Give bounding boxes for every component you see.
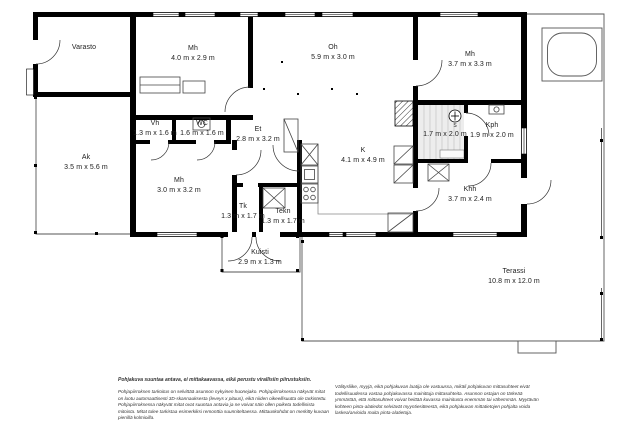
room-label-sauna: 1.7 m x 2.0 m bbox=[423, 130, 467, 140]
sauna-stove-label: S bbox=[453, 123, 456, 129]
room-label-terassi: Terassi10.8 m x 12.0 m bbox=[488, 267, 540, 287]
bathroom-sink bbox=[489, 105, 504, 114]
disclaimer-heading: Pohjakuva suuntaa antava, ei mittakaavas… bbox=[118, 377, 348, 384]
room-label-mh-ne: Mh3.7 m x 3.3 m bbox=[448, 50, 492, 70]
room-dims: 2.8 m x 3.2 m bbox=[236, 135, 280, 145]
room-dims: 10.8 m x 12.0 m bbox=[488, 277, 540, 287]
room-name: Varasto bbox=[72, 43, 96, 53]
room-name: Terassi bbox=[488, 267, 540, 277]
room-dims: 1.9 m x 2.0 m bbox=[470, 131, 514, 141]
disclaimer-right-paragraph: Välitysliike, myyjä, eikä pohjakuvan laa… bbox=[335, 384, 540, 417]
room-name: Kuisti bbox=[238, 248, 282, 258]
room-name: K bbox=[341, 146, 385, 156]
room-label-k: K4.1 m x 4.9 m bbox=[341, 146, 385, 166]
room-label-kph: Kph1.9 m x 2.0 m bbox=[470, 121, 514, 141]
floorplan-drawing bbox=[0, 0, 640, 426]
room-label-kuisti: Kuisti2.9 m x 1.3 m bbox=[238, 248, 282, 268]
room-dims: 3.0 m x 3.2 m bbox=[157, 186, 201, 196]
room-label-vh: Vh1.3 m x 1.6 m bbox=[133, 119, 177, 139]
room-label-wc: WC1.6 m x 1.6 m bbox=[180, 119, 224, 139]
disclaimer-left-paragraph: Pohjapiirroksen tarkoitus on selvittää a… bbox=[118, 389, 330, 422]
room-name: Oh bbox=[311, 43, 355, 53]
room-name: Vh bbox=[133, 119, 177, 129]
sauna-stove-icon bbox=[449, 110, 461, 122]
room-name: Khh bbox=[448, 185, 492, 195]
room-name: Mh bbox=[171, 44, 215, 54]
room-label-ak: Ak3.5 m x 5.6 m bbox=[64, 153, 108, 173]
room-label-varasto: Varasto bbox=[72, 43, 96, 53]
room-dims: 3.7 m x 2.4 m bbox=[448, 195, 492, 205]
room-label-et: Et2.8 m x 3.2 m bbox=[236, 125, 280, 145]
room-label-mh-sw: Mh3.0 m x 3.2 m bbox=[157, 176, 201, 196]
room-name: WC bbox=[180, 119, 224, 129]
room-dims: 3.7 m x 3.3 m bbox=[448, 60, 492, 70]
fireplace bbox=[395, 101, 413, 126]
room-name: Mh bbox=[157, 176, 201, 186]
room-dims: 1.3 m x 1.6 m bbox=[133, 129, 177, 139]
room-label-khh: Khh3.7 m x 2.4 m bbox=[448, 185, 492, 205]
room-name: Ak bbox=[64, 153, 108, 163]
room-label-oh: Oh5.9 m x 3.0 m bbox=[311, 43, 355, 63]
room-dims: 5.9 m x 3.0 m bbox=[311, 53, 355, 63]
room-name: Tekn bbox=[261, 207, 305, 217]
room-dims: 1.3 m x 1.7 m bbox=[221, 212, 265, 222]
room-dims: 4.1 m x 4.9 m bbox=[341, 156, 385, 166]
room-label-mh-nw: Mh4.0 m x 2.9 m bbox=[171, 44, 215, 64]
room-name: Tk bbox=[221, 202, 265, 212]
room-dims: 1.3 m x 1.7 m bbox=[261, 217, 305, 227]
room-label-tekn: Tekn1.3 m x 1.7 m bbox=[261, 207, 305, 227]
door-arcs bbox=[36, 40, 551, 261]
room-dims: 1.6 m x 1.6 m bbox=[180, 129, 224, 139]
room-dims: 3.5 m x 5.6 m bbox=[64, 163, 108, 173]
room-label-tk: Tk1.3 m x 1.7 m bbox=[221, 202, 265, 222]
room-name: Mh bbox=[448, 50, 492, 60]
hot-tub bbox=[542, 28, 602, 81]
room-dims: 1.7 m x 2.0 m bbox=[423, 130, 467, 140]
room-dims: 2.9 m x 1.3 m bbox=[238, 258, 282, 268]
floorplan-page: Varasto Mh4.0 m x 2.9 m Oh5.9 m x 3.0 m … bbox=[0, 0, 640, 426]
room-name: Et bbox=[236, 125, 280, 135]
room-name: Kph bbox=[470, 121, 514, 131]
room-dims: 4.0 m x 2.9 m bbox=[171, 54, 215, 64]
